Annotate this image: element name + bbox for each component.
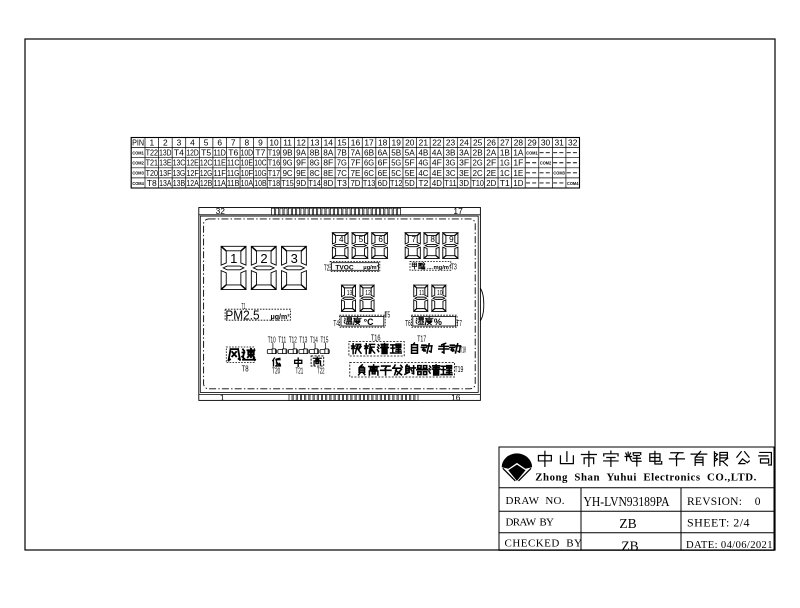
svg-text:10: 10 — [269, 137, 279, 147]
svg-text:2: 2 — [163, 137, 168, 147]
svg-text:1: 1 — [230, 251, 237, 266]
svg-text:CHECKED BY: CHECKED BY — [505, 538, 583, 550]
svg-text:1F: 1F — [513, 158, 523, 168]
svg-text:8C: 8C — [310, 168, 320, 178]
svg-text:T14: T14 — [310, 334, 318, 344]
svg-text:10: 10 — [437, 288, 443, 297]
svg-text:2D: 2D — [486, 178, 496, 188]
svg-text:12B: 12B — [200, 178, 213, 188]
svg-text:11B: 11B — [227, 178, 240, 188]
svg-text:....: .... — [427, 265, 433, 271]
svg-text:10B: 10B — [254, 178, 267, 188]
svg-text:4G: 4G — [418, 158, 428, 168]
svg-text:13G: 13G — [173, 168, 185, 178]
svg-text:T6: T6 — [228, 148, 238, 158]
svg-text:18: 18 — [378, 137, 388, 147]
svg-text:3D: 3D — [459, 178, 469, 188]
svg-text:T7: T7 — [255, 148, 265, 158]
svg-text:19: 19 — [392, 137, 402, 147]
svg-text:1: 1 — [220, 392, 225, 402]
svg-text:SHEET: 2/4: SHEET: 2/4 — [687, 516, 750, 530]
svg-text:12A: 12A — [186, 178, 199, 188]
svg-text:7: 7 — [412, 235, 417, 244]
svg-text:COM3: COM3 — [553, 171, 565, 177]
svg-text:DRAW NO.: DRAW NO. — [506, 495, 565, 507]
svg-text:2A: 2A — [486, 148, 496, 158]
svg-text:21: 21 — [419, 137, 429, 147]
svg-text:9D: 9D — [296, 178, 306, 188]
svg-text:3: 3 — [291, 251, 298, 266]
svg-text:Zhong Shan Yuhui Electronic: Zhong Shan Yuhui Electronics CO.,LTD. — [535, 471, 756, 483]
svg-text:ZB: ZB — [621, 538, 638, 553]
svg-text:10C: 10C — [254, 158, 266, 168]
svg-text:13D: 13D — [159, 148, 171, 158]
svg-text:T21: T21 — [296, 365, 304, 375]
svg-text:12C: 12C — [200, 158, 212, 168]
svg-text:8B: 8B — [310, 148, 320, 158]
svg-text:10E: 10E — [241, 158, 254, 168]
svg-text:T2: T2 — [324, 263, 330, 273]
svg-text:T2: T2 — [418, 178, 428, 188]
svg-text:T6: T6 — [405, 318, 411, 328]
svg-text:4F: 4F — [432, 158, 442, 168]
svg-text:17: 17 — [453, 206, 463, 216]
svg-text:12: 12 — [365, 288, 371, 297]
svg-text:5G: 5G — [391, 158, 401, 168]
svg-text:5F: 5F — [405, 158, 415, 168]
svg-text:22: 22 — [432, 137, 442, 147]
svg-text:9C: 9C — [283, 168, 293, 178]
svg-text:1D: 1D — [513, 178, 523, 188]
svg-text:7B: 7B — [337, 148, 347, 158]
svg-text:8G: 8G — [310, 158, 320, 168]
svg-text:T17: T17 — [417, 333, 426, 343]
svg-text:8: 8 — [430, 235, 435, 244]
svg-text:7D: 7D — [350, 178, 360, 188]
svg-text:31: 31 — [554, 137, 564, 147]
svg-text:7: 7 — [231, 137, 236, 147]
svg-text:12E: 12E — [186, 158, 199, 168]
svg-text:7G: 7G — [337, 158, 347, 168]
svg-text:11A: 11A — [213, 178, 226, 188]
svg-text:12: 12 — [296, 137, 306, 147]
svg-text:2B: 2B — [473, 148, 483, 158]
svg-text:T3: T3 — [337, 178, 347, 188]
svg-text:T20: T20 — [272, 365, 280, 375]
svg-text:4: 4 — [339, 235, 344, 244]
svg-text:6A: 6A — [378, 148, 388, 158]
svg-text:T4: T4 — [174, 148, 184, 158]
svg-text:T10: T10 — [268, 334, 276, 344]
svg-text:T17: T17 — [268, 168, 281, 178]
svg-text:T3: T3 — [451, 262, 457, 272]
svg-text:8A: 8A — [323, 148, 333, 158]
svg-text:COM2: COM2 — [540, 161, 552, 167]
svg-text:T18: T18 — [268, 178, 281, 188]
svg-text:9A: 9A — [296, 148, 306, 158]
svg-text:T15: T15 — [281, 178, 294, 188]
svg-text:5B: 5B — [391, 148, 401, 158]
svg-text:T13: T13 — [363, 178, 376, 188]
svg-text:4E: 4E — [432, 168, 442, 178]
svg-text:16: 16 — [351, 137, 361, 147]
svg-text:24: 24 — [459, 137, 469, 147]
svg-text:4C: 4C — [418, 168, 428, 178]
svg-text:10D: 10D — [241, 148, 253, 158]
svg-text:T8: T8 — [242, 363, 249, 373]
svg-text:COM3: COM3 — [132, 171, 144, 177]
svg-text:T22: T22 — [317, 365, 324, 375]
svg-text:11D: 11D — [213, 148, 225, 158]
svg-text:10G: 10G — [254, 168, 266, 178]
svg-text:PIN: PIN — [132, 137, 144, 147]
svg-text:15: 15 — [337, 137, 347, 147]
svg-text:27: 27 — [500, 137, 510, 147]
svg-text:T8: T8 — [147, 178, 157, 188]
svg-text:32: 32 — [216, 206, 226, 216]
svg-text:6G: 6G — [364, 158, 374, 168]
svg-text:T11: T11 — [444, 178, 457, 188]
svg-text:T21: T21 — [146, 158, 159, 168]
svg-text:6: 6 — [378, 235, 383, 244]
svg-text:9E: 9E — [296, 168, 306, 178]
svg-text:2: 2 — [260, 251, 267, 266]
svg-text:10F: 10F — [241, 168, 253, 178]
svg-text:11: 11 — [283, 137, 292, 147]
svg-text:T15: T15 — [321, 334, 329, 344]
svg-text:5: 5 — [204, 137, 209, 147]
svg-text:REVSION: 0: REVSION: 0 — [687, 496, 761, 508]
svg-text:26: 26 — [487, 137, 497, 147]
svg-text:T7: T7 — [456, 318, 462, 328]
svg-text:7F: 7F — [350, 158, 360, 168]
svg-text:3: 3 — [177, 137, 182, 147]
svg-text:T18: T18 — [460, 345, 466, 355]
svg-text:3F: 3F — [459, 158, 469, 168]
svg-text:20: 20 — [405, 137, 415, 147]
svg-text:3G: 3G — [446, 158, 456, 168]
svg-text:COM2: COM2 — [132, 161, 144, 167]
svg-text:5C: 5C — [391, 168, 401, 178]
svg-text:30: 30 — [541, 137, 551, 147]
svg-text:COM1: COM1 — [132, 150, 144, 156]
svg-text:8: 8 — [245, 137, 250, 147]
svg-text:3A: 3A — [459, 148, 469, 158]
svg-text:4D: 4D — [432, 178, 442, 188]
svg-text:YH-LVN93189PA: YH-LVN93189PA — [584, 494, 670, 509]
svg-text:10A: 10A — [241, 178, 254, 188]
svg-text:2C: 2C — [473, 168, 483, 178]
svg-text:17: 17 — [364, 137, 374, 147]
svg-text:7C: 7C — [337, 168, 347, 178]
svg-text:6C: 6C — [364, 168, 374, 178]
svg-text:T13: T13 — [299, 334, 307, 344]
svg-text:6E: 6E — [378, 168, 388, 178]
svg-text:T22: T22 — [146, 148, 159, 158]
svg-text:T12: T12 — [390, 178, 403, 188]
svg-text:8D: 8D — [323, 178, 333, 188]
svg-text:T1: T1 — [500, 178, 510, 188]
svg-text:ZB: ZB — [619, 516, 636, 531]
svg-text:T11: T11 — [278, 334, 286, 344]
svg-text:7A: 7A — [350, 148, 360, 158]
svg-text:1G: 1G — [500, 158, 510, 168]
svg-text:2E: 2E — [486, 168, 496, 178]
svg-text:°C: °C — [364, 317, 375, 327]
svg-text:23: 23 — [446, 137, 456, 147]
svg-text:9G: 9G — [283, 158, 293, 168]
svg-text:3B: 3B — [446, 148, 456, 158]
svg-text:T19: T19 — [455, 364, 464, 374]
svg-text:9F: 9F — [296, 158, 306, 168]
svg-text:12D: 12D — [186, 148, 198, 158]
svg-text:2G: 2G — [473, 158, 483, 168]
svg-text:9: 9 — [258, 137, 263, 147]
svg-text:25: 25 — [473, 137, 483, 147]
svg-text:7E: 7E — [350, 168, 360, 178]
svg-text:T20: T20 — [146, 168, 159, 178]
svg-text:16: 16 — [451, 392, 461, 402]
svg-text:DRAW BY: DRAW BY — [506, 516, 555, 528]
svg-text:13A: 13A — [159, 178, 172, 188]
svg-text:12F: 12F — [186, 168, 198, 178]
svg-text:μg/m³: μg/m³ — [271, 314, 291, 321]
svg-text:6: 6 — [217, 137, 222, 147]
svg-text:T4: T4 — [333, 318, 339, 328]
svg-text:5D: 5D — [405, 178, 415, 188]
svg-text:T10: T10 — [471, 178, 484, 188]
svg-text:T19: T19 — [268, 148, 281, 158]
svg-text:COM1: COM1 — [526, 150, 538, 156]
svg-text:32: 32 — [568, 137, 578, 147]
svg-text:1A: 1A — [513, 148, 523, 158]
svg-text:COM4: COM4 — [567, 181, 579, 187]
svg-text:TVOC: TVOC — [335, 264, 354, 271]
svg-text:1C: 1C — [500, 168, 510, 178]
svg-text:%: % — [434, 317, 442, 327]
svg-text:4A: 4A — [432, 148, 442, 158]
svg-text:5: 5 — [359, 235, 364, 244]
svg-text:4: 4 — [190, 137, 195, 147]
svg-text:8E: 8E — [323, 168, 333, 178]
svg-text:13B: 13B — [173, 178, 186, 188]
svg-text:5E: 5E — [405, 168, 415, 178]
svg-text:14: 14 — [324, 137, 334, 147]
svg-text:11E: 11E — [213, 158, 226, 168]
svg-text:μg/m³: μg/m³ — [363, 264, 378, 271]
svg-text:6D: 6D — [378, 178, 388, 188]
svg-text:13F: 13F — [159, 168, 171, 178]
svg-text:12G: 12G — [200, 168, 212, 178]
svg-text:T5: T5 — [201, 148, 211, 158]
svg-text:2F: 2F — [486, 158, 496, 168]
svg-text:11: 11 — [419, 288, 425, 297]
svg-text:PM2.5: PM2.5 — [225, 308, 259, 323]
svg-text:6F: 6F — [378, 158, 388, 168]
svg-text:mg/m³: mg/m³ — [434, 264, 451, 271]
svg-text:T16: T16 — [371, 333, 381, 343]
svg-text:28: 28 — [514, 137, 524, 147]
svg-text:3C: 3C — [446, 168, 456, 178]
svg-text:11F: 11F — [213, 168, 225, 178]
svg-text:1: 1 — [149, 137, 154, 147]
svg-text:9B: 9B — [283, 148, 293, 158]
svg-text:1E: 1E — [513, 168, 523, 178]
svg-text:DATE: 04/06/2021: DATE: 04/06/2021 — [686, 540, 773, 551]
svg-text:COM4: COM4 — [132, 181, 144, 187]
svg-text:T16: T16 — [268, 158, 281, 168]
svg-text:11G: 11G — [227, 168, 239, 178]
svg-text:3E: 3E — [459, 168, 469, 178]
svg-text:4B: 4B — [418, 148, 428, 158]
svg-text:9: 9 — [449, 235, 454, 244]
svg-text:5A: 5A — [405, 148, 415, 158]
svg-text:8F: 8F — [323, 158, 333, 168]
svg-text:11C: 11C — [227, 158, 239, 168]
svg-text:6B: 6B — [364, 148, 374, 158]
svg-text:13C: 13C — [173, 158, 185, 168]
svg-text:13: 13 — [310, 137, 320, 147]
svg-text:13: 13 — [347, 288, 353, 297]
svg-text:13E: 13E — [159, 158, 172, 168]
svg-text:1B: 1B — [500, 148, 510, 158]
svg-text:29: 29 — [527, 137, 537, 147]
svg-text:T12: T12 — [289, 334, 297, 344]
svg-text:T14: T14 — [309, 178, 322, 188]
